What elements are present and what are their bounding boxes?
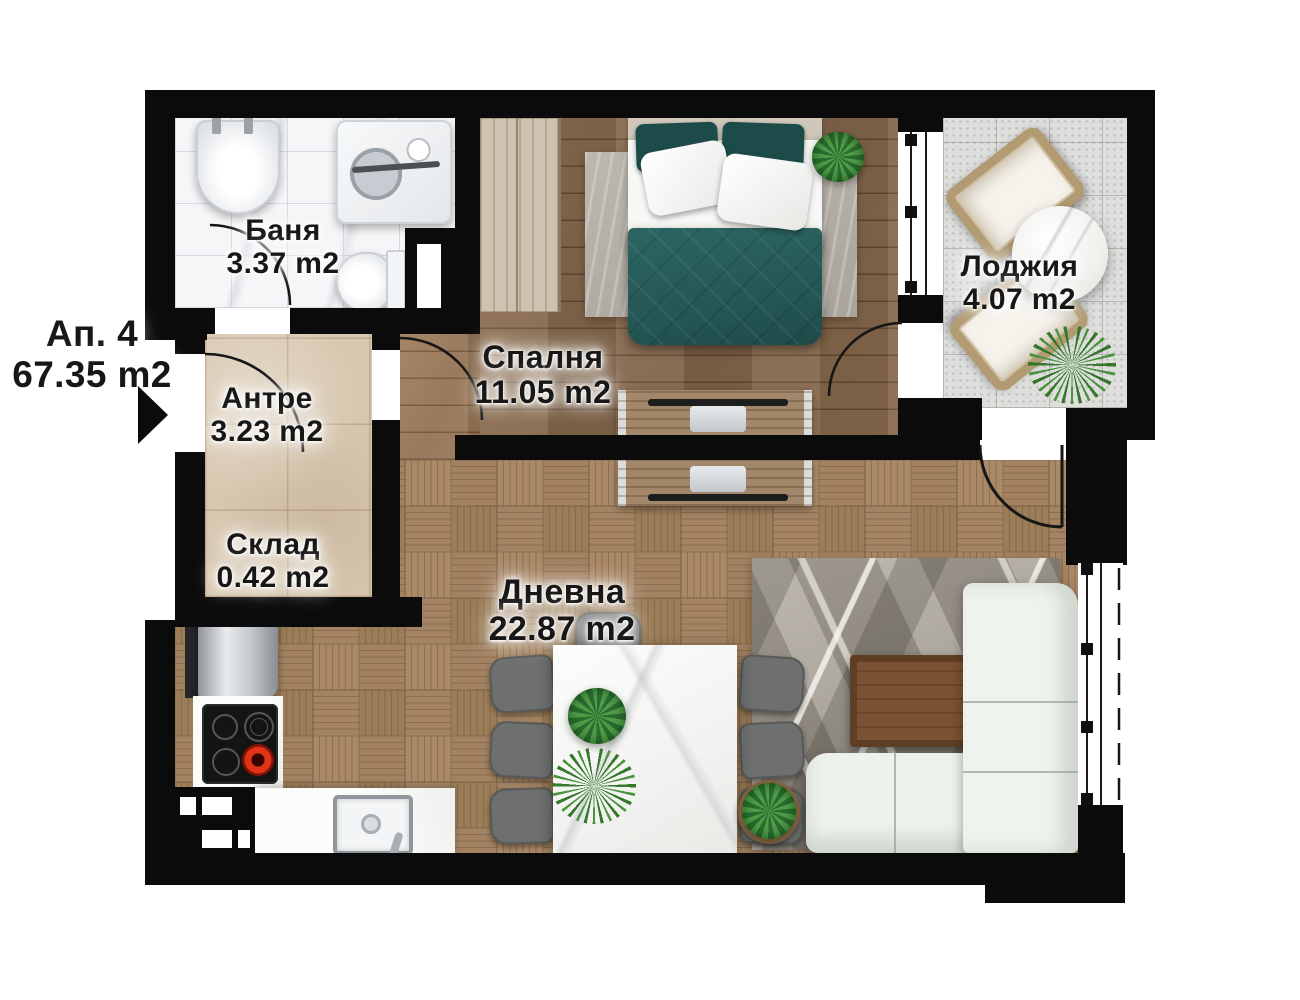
bed-duvet — [628, 228, 822, 345]
wardrobe — [480, 118, 561, 312]
wall-top — [145, 90, 1155, 118]
kitchen-sink-drain — [361, 814, 381, 834]
room-name: Спалня — [448, 340, 638, 375]
dining-table-plant — [568, 688, 626, 744]
wall-bottom-right-block — [985, 853, 1125, 903]
tv-shelf-bedroom — [690, 406, 746, 432]
cooktop-burner-2 — [244, 712, 274, 742]
dining-chair-right-1 — [738, 654, 806, 714]
window-living-right — [1078, 563, 1123, 805]
wall-partition-stub-bottom — [898, 398, 982, 440]
window-mullion — [905, 206, 917, 218]
sofa-right-section — [963, 583, 1078, 853]
floor-plan: Ап. 4 67.35 m2 Баня 3.37 m2 Антре 3.23 m… — [0, 0, 1300, 1000]
bathroom-sink — [196, 120, 280, 214]
wall-hall-right — [372, 420, 400, 600]
wall-bath-right — [455, 118, 480, 334]
shaft-slot — [417, 244, 441, 308]
room-name: Склад — [188, 528, 358, 561]
wall-left-upper — [145, 90, 175, 340]
dining-chair-right-2 — [739, 720, 806, 779]
cooktop-burner-3 — [212, 748, 240, 776]
apartment-label: Ап. 4 67.35 m2 — [2, 314, 182, 395]
coffee-table — [850, 655, 976, 747]
room-name: Баня — [198, 214, 368, 247]
tv-shelf-living — [690, 466, 746, 492]
apartment-number: Ап. 4 — [2, 314, 182, 355]
sofa-plant — [742, 783, 796, 839]
cabinet-slot-2 — [202, 797, 232, 815]
wardrobe-divider — [516, 118, 518, 312]
room-label-hallway: Антре 3.23 m2 — [182, 382, 352, 448]
dining-chair-left-3 — [489, 787, 555, 845]
window-mullion — [905, 134, 917, 146]
room-area: 3.23 m2 — [182, 415, 352, 448]
wall-bottom-main — [145, 853, 985, 885]
room-label-bedroom: Спалня 11.05 m2 — [448, 340, 638, 410]
toilet-tank — [386, 250, 406, 314]
room-name: Дневна — [462, 574, 662, 611]
dining-table-plant-spiky — [552, 748, 636, 824]
dining-chair-left-1 — [488, 654, 556, 714]
wall-below-window — [1078, 805, 1123, 853]
loggia-plant — [1028, 326, 1116, 404]
window-mullion — [1081, 721, 1093, 733]
window-mullion — [1081, 793, 1093, 805]
room-area: 4.07 m2 — [932, 283, 1107, 316]
wall-storage-bottom — [175, 597, 422, 627]
room-label-storage: Склад 0.42 m2 — [188, 528, 358, 594]
wall-hall-right-stub — [372, 330, 400, 350]
bedroom-plant — [812, 132, 864, 182]
bathroom-sink-taps — [212, 116, 221, 134]
wall-loggia-living-block — [1066, 408, 1127, 565]
cabinet-slot-1 — [180, 797, 196, 815]
room-area: 22.87 m2 — [462, 611, 662, 648]
window-mullion — [1081, 643, 1093, 655]
room-label-bathroom: Баня 3.37 m2 — [198, 214, 368, 280]
room-name: Лоджия — [932, 250, 1107, 283]
wall-right-outer — [1127, 90, 1155, 440]
room-name: Антре — [182, 382, 352, 415]
bed-pillow-white-right — [716, 152, 815, 232]
entrance-arrow-icon — [138, 386, 168, 444]
tv-bedroom — [648, 399, 788, 406]
room-area: 0.42 m2 — [188, 561, 358, 594]
room-area: 3.37 m2 — [198, 247, 368, 280]
cabinet-slot-3 — [202, 830, 232, 848]
window-mullion — [905, 281, 917, 293]
dining-chair-left-2 — [489, 720, 556, 779]
window-mullion — [1081, 563, 1093, 575]
room-area: 11.05 m2 — [448, 375, 638, 410]
cooktop-burner-red — [242, 744, 274, 776]
room-label-living: Дневна 22.87 m2 — [462, 574, 662, 649]
tv-living — [648, 494, 788, 501]
cabinet-slot-4 — [238, 830, 250, 848]
room-label-loggia: Лоджия 4.07 m2 — [932, 250, 1107, 316]
wall-partition-stub-top — [898, 118, 943, 132]
cooktop-burner-1 — [212, 714, 238, 740]
